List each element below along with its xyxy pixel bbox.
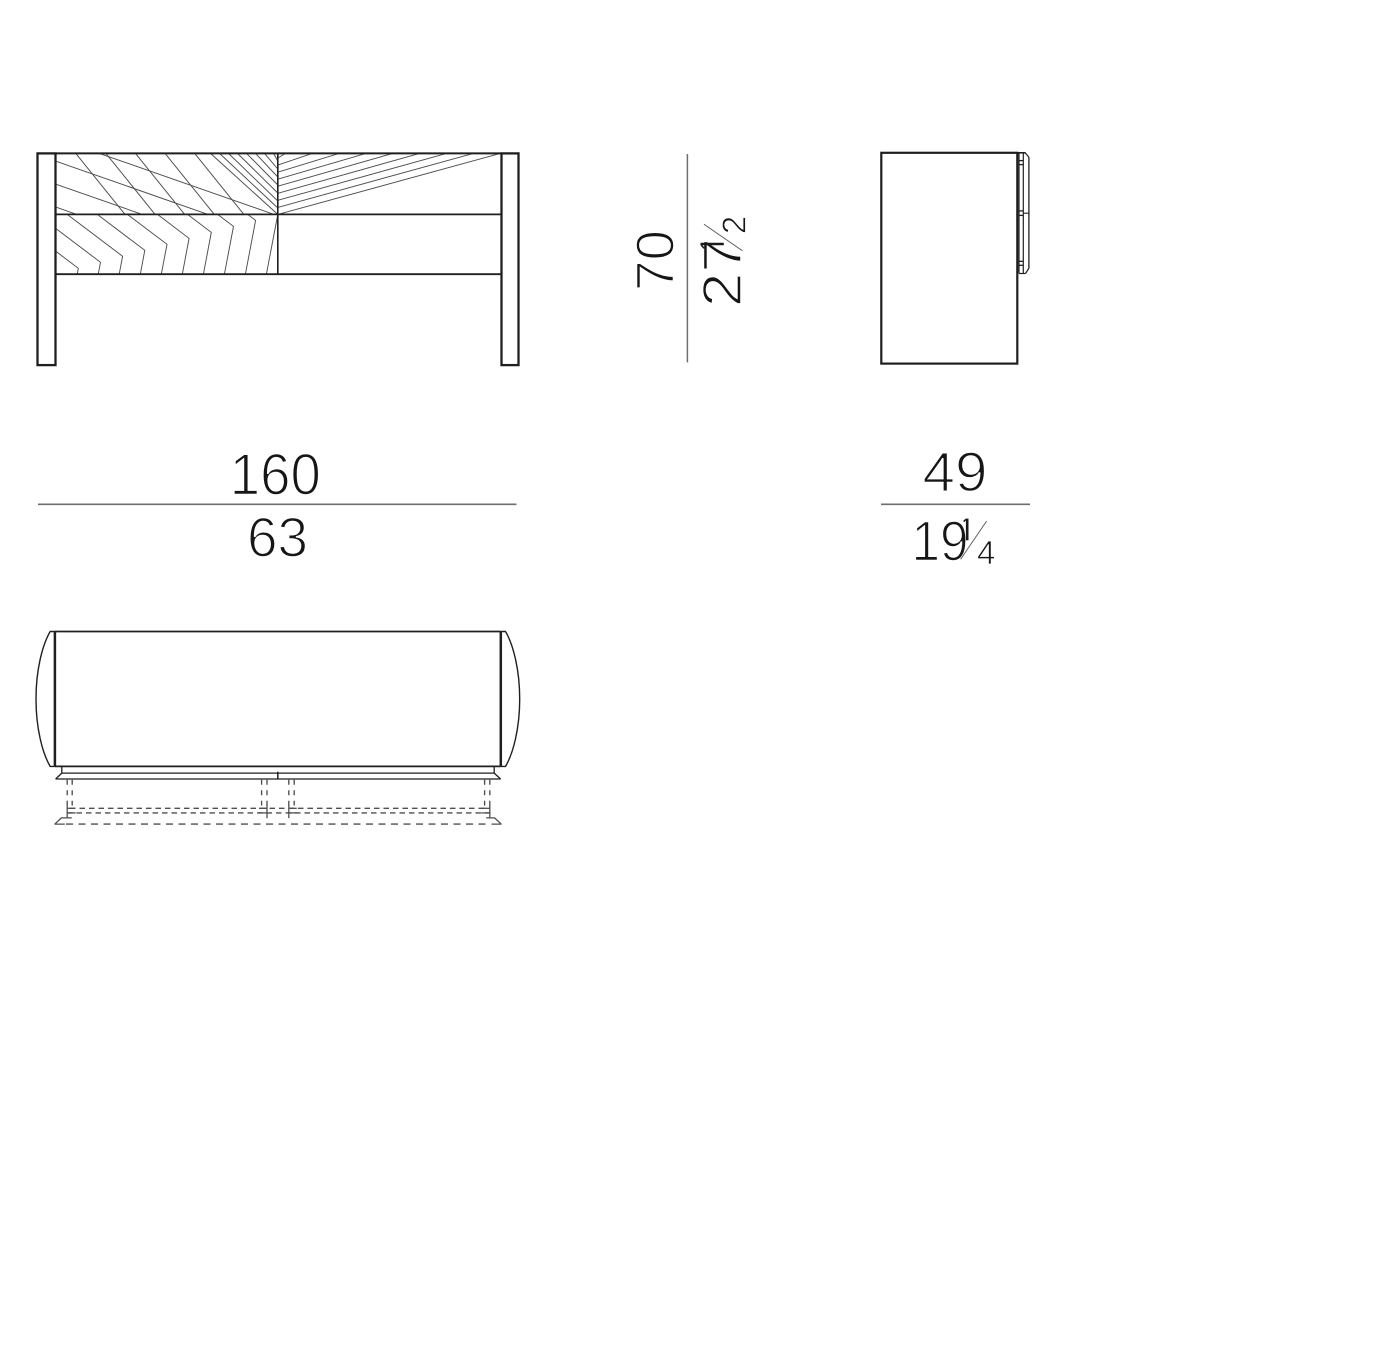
svg-text:27: 27 [692, 238, 753, 307]
svg-text:19: 19 [912, 510, 969, 574]
svg-text:49: 49 [923, 440, 988, 503]
svg-text:4: 4 [977, 534, 995, 571]
svg-text:2: 2 [715, 216, 752, 234]
svg-text:70: 70 [626, 230, 685, 291]
svg-text:63: 63 [247, 505, 308, 568]
svg-text:160: 160 [230, 442, 321, 507]
